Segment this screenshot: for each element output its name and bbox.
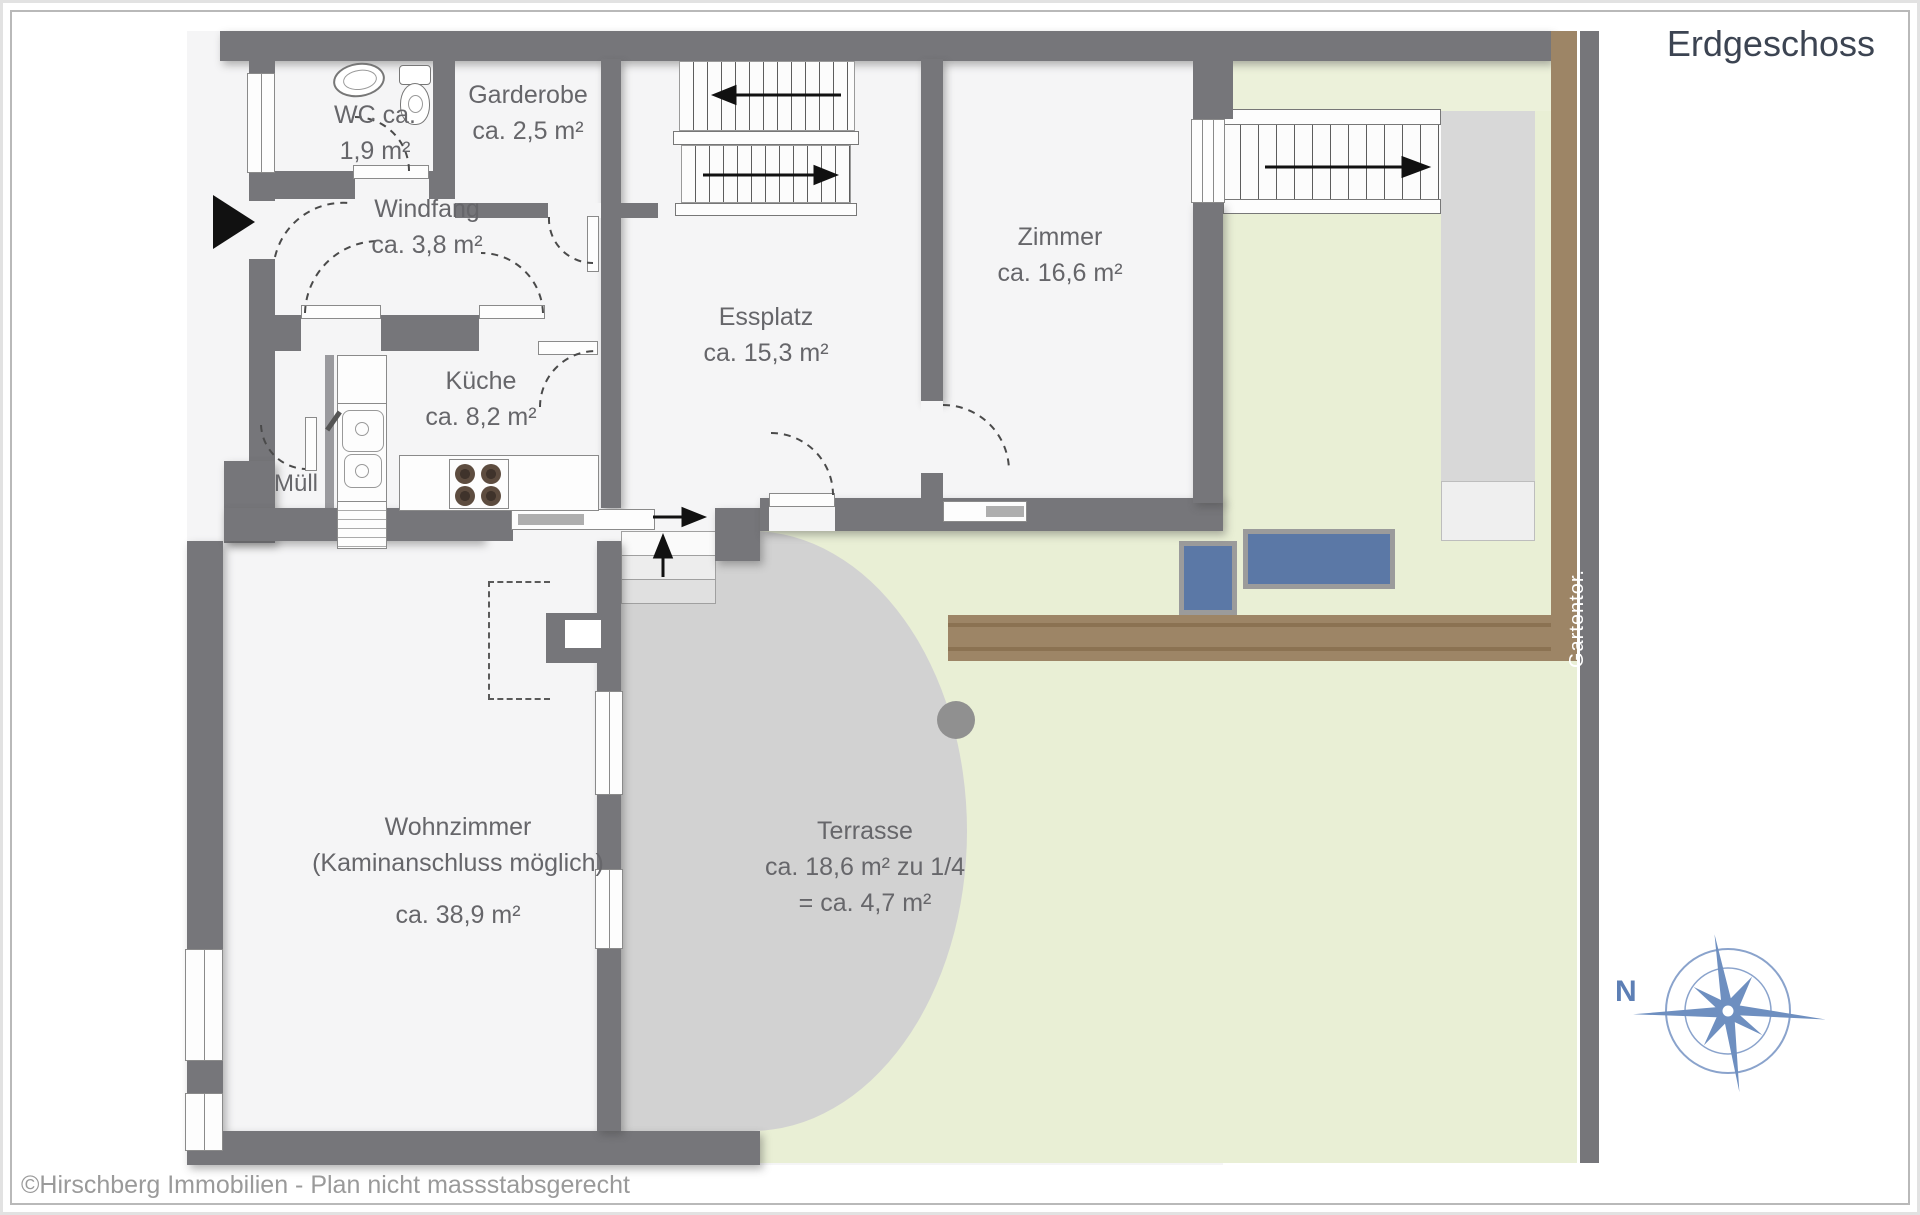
footer-credit: ©Hirschberg Immobilien - Plan nicht mass…: [21, 1171, 630, 1200]
garden-path: [948, 615, 1577, 661]
kitchen-sink-unit: [337, 403, 387, 503]
floorplan-page: WC ca.1,9 m² Garderobeca. 2,5 m² Windfan…: [0, 0, 1920, 1215]
wall-zimmer-right: [1193, 203, 1223, 503]
compass-icon: [1628, 923, 1838, 1108]
patio-gray-area: [1441, 111, 1535, 481]
garden-area-mid: [1223, 214, 1441, 531]
wall: [483, 508, 513, 541]
wall-top: [220, 31, 1551, 61]
door-opening: [479, 315, 536, 351]
page-title: Erdgeschoss: [1667, 23, 1875, 65]
room-label-line: Terrasse: [765, 813, 965, 849]
room-label-line: (Kaminanschluss möglich): [312, 845, 604, 881]
room-label-wohnzimmer: Wohnzimmer(Kaminanschluss möglich)ca. 38…: [312, 809, 604, 933]
garden-stairs-bottom-rail: [1223, 199, 1441, 214]
room-label-line: WC ca.: [334, 97, 416, 133]
wall-corner-chunk: [1198, 31, 1233, 119]
compass-north-label: N: [1615, 975, 1637, 1009]
wall-garderobe-right: [601, 59, 621, 508]
door-leaf: [305, 417, 317, 471]
room-label-line: ca. 3,8 m²: [371, 227, 482, 263]
room-label-line: ca. 15,3 m²: [703, 335, 828, 371]
wall-essplatz-zimmer: [921, 59, 943, 401]
kitchen-stove: [449, 459, 509, 509]
window-zimmer-right: [1191, 119, 1225, 203]
room-label-wc: WC ca.1,9 m²: [334, 97, 416, 169]
room-label-line: Wohnzimmer: [312, 809, 604, 845]
room-label-line: Essplatz: [703, 299, 828, 335]
entrance-arrow-icon: [213, 195, 255, 249]
stairs-lower-flight: [681, 145, 851, 203]
room-label-line: ca. 38,9 m²: [312, 897, 604, 933]
wall-terrace-chunk: [715, 508, 760, 561]
room-label-line: 1,9 m²: [334, 133, 416, 169]
garden-stairs: [1223, 125, 1441, 200]
terrace-post: [937, 701, 975, 739]
kitchen-drainboard: [337, 501, 387, 549]
chimney-dashed-outline: [488, 581, 550, 700]
kitchen-counter-left: [337, 355, 387, 405]
door-leaf: [301, 305, 381, 319]
wall-wc-divider: [433, 59, 455, 171]
room-label-line: Küche: [425, 363, 536, 399]
room-label-line: Zimmer: [997, 219, 1122, 255]
terrace-step: [621, 555, 716, 580]
stairs-upper-flight: [679, 61, 855, 131]
stairs-mid-landing: [673, 131, 859, 145]
room-label-line: = ca. 4,7 m²: [765, 885, 965, 921]
wall: [921, 473, 943, 501]
garden-area-top: [1223, 61, 1551, 111]
room-label-windfang: Windfangca. 3,8 m²: [371, 191, 482, 263]
garden-gate-label: Gartentor.: [1566, 531, 1600, 706]
room-label-line: Müll: [274, 466, 318, 502]
room-label-line: ca. 16,6 m²: [997, 255, 1122, 291]
room-label-essplatz: Essplatzca. 15,3 m²: [703, 299, 828, 371]
wall-bottom: [187, 1131, 760, 1165]
room-label-zimmer: Zimmerca. 16,6 m²: [997, 219, 1122, 291]
room-label-line: ca. 2,5 m²: [468, 113, 588, 149]
room-label-line: Windfang: [371, 191, 482, 227]
door-opening: [301, 315, 381, 351]
room-label-garderobe: Garderobeca. 2,5 m²: [468, 77, 588, 149]
room-label-line: ca. 8,2 m²: [425, 399, 536, 435]
door-leaf: [769, 493, 835, 507]
door-leaf: [587, 216, 599, 272]
room-label-kueche: Kücheca. 8,2 m²: [425, 363, 536, 435]
sliding-door-terrace: [511, 509, 655, 530]
room-label-line: Garderobe: [468, 77, 588, 113]
window-livingroom-left-1: [185, 949, 223, 1061]
room-label-line: ca. 18,6 m² zu 1/4: [765, 849, 965, 885]
door-opening: [921, 401, 943, 473]
terrace-step: [621, 531, 716, 556]
stairs-bottom-landing: [675, 203, 857, 216]
window-livingroom-left-2: [185, 1093, 223, 1151]
door-leaf: [538, 341, 598, 355]
room-label-terrasse: Terrasseca. 18,6 m² zu 1/4= ca. 4,7 m²: [765, 813, 965, 921]
window-wc: [247, 73, 275, 173]
window-terrace-wall-1: [595, 691, 623, 795]
chimney-flue: [565, 620, 601, 648]
garden-strip-right: [1535, 111, 1551, 615]
terrace-step: [621, 579, 716, 604]
patio-white-block: [1441, 481, 1535, 541]
garden-furniture-square: [1179, 541, 1237, 615]
garden-furniture-bench: [1243, 529, 1395, 589]
wall: [249, 259, 275, 463]
garden-stairs-top-rail: [1223, 109, 1441, 125]
wall-niche-divider: [325, 355, 334, 508]
door-leaf: [479, 305, 545, 319]
sliding-door-zimmer: [943, 501, 1027, 522]
room-label-muell: Müll: [274, 466, 318, 502]
